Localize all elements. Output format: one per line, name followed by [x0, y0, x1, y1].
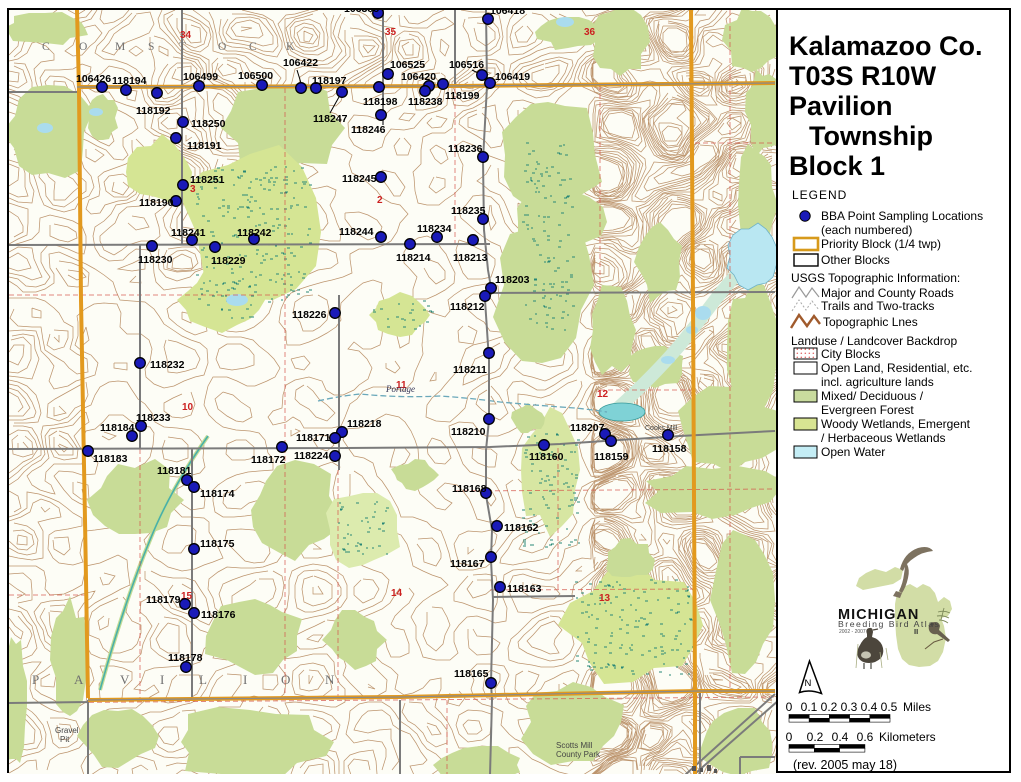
svg-text:0.4: 0.4: [832, 730, 849, 744]
svg-text:0.3: 0.3: [841, 700, 858, 714]
svg-text:Kilometers: Kilometers: [879, 730, 936, 744]
svg-text:0.2: 0.2: [821, 700, 838, 714]
svg-text:N: N: [805, 678, 812, 689]
svg-text:2002 - 2007: 2002 - 2007: [839, 629, 866, 635]
svg-text:0.6: 0.6: [857, 730, 874, 744]
svg-text:0.4: 0.4: [861, 700, 878, 714]
svg-text:Miles: Miles: [903, 700, 931, 714]
svg-text:0.2: 0.2: [807, 730, 824, 744]
svg-text:0: 0: [786, 700, 793, 714]
svg-text:0: 0: [786, 730, 793, 744]
svg-text:Breeding Bird Atlas: Breeding Bird Atlas: [838, 619, 940, 629]
svg-text:0.5: 0.5: [881, 700, 898, 714]
svg-text:II: II: [914, 627, 918, 636]
svg-text:0.1: 0.1: [801, 700, 818, 714]
